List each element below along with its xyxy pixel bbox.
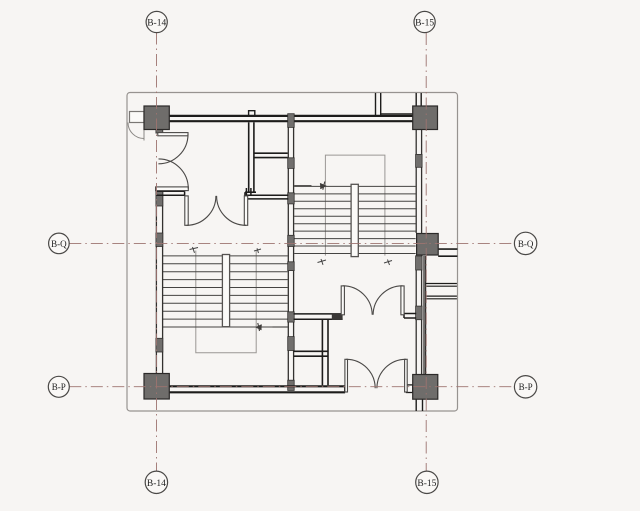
svg-text:B-14: B-14 <box>147 479 166 489</box>
svg-text:B-14: B-14 <box>147 18 166 28</box>
svg-text:B-Q: B-Q <box>51 239 67 249</box>
svg-text:B-15: B-15 <box>417 479 436 489</box>
svg-text:B-Q: B-Q <box>518 239 534 249</box>
svg-text:B-15: B-15 <box>415 18 434 28</box>
svg-text:B-P: B-P <box>519 382 533 392</box>
svg-text:B-P: B-P <box>52 382 66 392</box>
